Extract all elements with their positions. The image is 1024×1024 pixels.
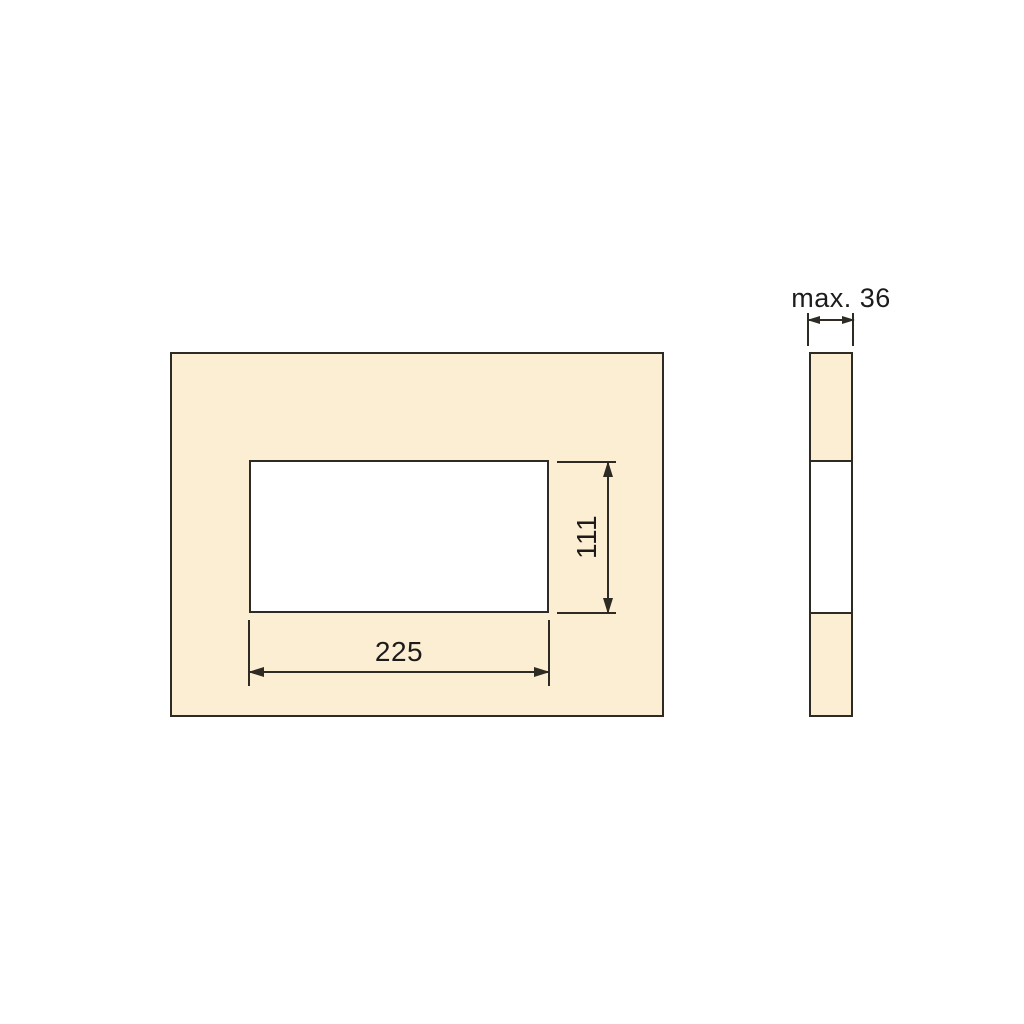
drawing-canvas: 225 111 max. 36 — [0, 0, 1024, 1024]
arrow-up-icon — [603, 461, 613, 477]
arrow-left-icon — [807, 316, 820, 324]
arrow-right-icon — [842, 316, 855, 324]
side-strip-top-section — [811, 354, 851, 460]
depth-dim-line — [808, 319, 854, 321]
width-dim-label: 225 — [249, 638, 549, 666]
width-dim-line — [249, 671, 549, 673]
arrow-left-icon — [248, 667, 264, 677]
height-dim-line — [607, 462, 609, 613]
side-view-strip — [809, 352, 853, 717]
panel-cutout — [249, 460, 549, 613]
arrow-down-icon — [603, 598, 613, 614]
arrow-right-icon — [534, 667, 550, 677]
side-strip-middle-section — [811, 460, 851, 614]
side-strip-bottom-section — [811, 614, 851, 715]
depth-dim-label: max. 36 — [771, 284, 911, 312]
height-dim-label: 111 — [573, 497, 601, 577]
